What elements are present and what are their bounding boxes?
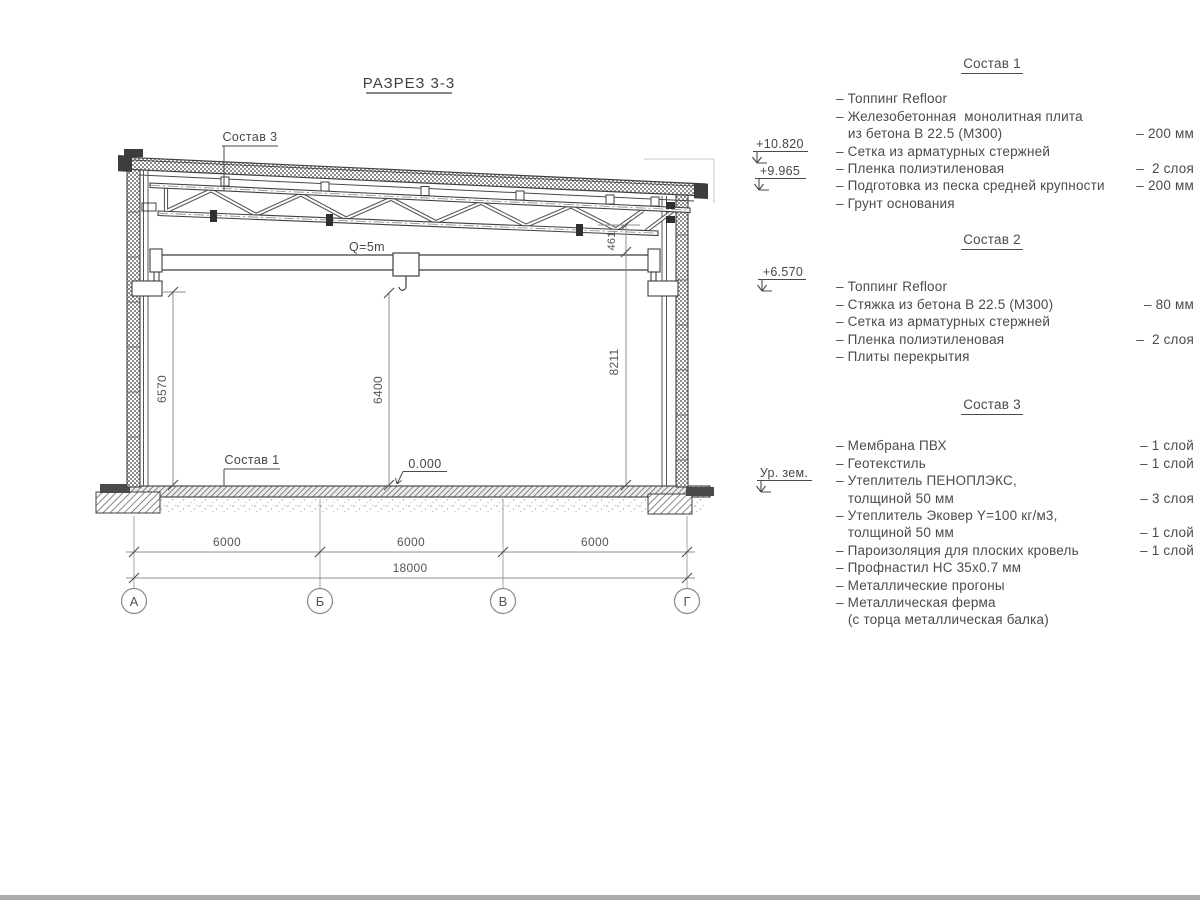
composition-row: – Утеплитель ПЕНОПЛЭКС, — [836, 472, 1194, 489]
composition-item-text: – Сетка из арматурных стержней — [836, 313, 1050, 330]
composition-row: толщиной 50 мм– 3 слоя — [836, 490, 1194, 507]
svg-text:+9.965: +9.965 — [760, 164, 800, 178]
composition-item-text: толщиной 50 мм — [836, 524, 954, 541]
elevation-beam: +6.570 — [758, 265, 807, 291]
composition-title: Состав 1 — [961, 55, 1023, 74]
composition-item-value: – 1 слой — [1140, 524, 1194, 541]
axis-label-v: В — [499, 594, 508, 609]
dim-truss-end: 461 — [606, 232, 618, 251]
dim-span-total: 18000 — [393, 561, 428, 575]
composition-row: – Плиты перекрытия — [836, 348, 1194, 365]
composition-item-text: – Подготовка из песка средней крупности — [836, 177, 1105, 194]
callout-sostav3: Состав 3 — [222, 130, 278, 191]
composition-item-text: – Утеплитель ПЕНОПЛЭКС, — [836, 472, 1017, 489]
dim-height-right: 8211 — [607, 348, 621, 375]
composition-item-value: – 2 слоя — [1136, 160, 1194, 177]
composition-list-2: Состав 2 – Топпинг Refloor – Стяжка из б… — [836, 231, 1194, 365]
composition-item-text: – Утеплитель Эковер Y=100 кг/м3, — [836, 507, 1058, 524]
composition-row: – Металлическая ферма — [836, 594, 1194, 611]
drawing-sheet: Q=5m Состав 3 Состав 1 0.000 6570 6400 8… — [0, 0, 1200, 900]
composition-row: – Мембрана ПВХ– 1 слой — [836, 437, 1194, 454]
composition-item-value: – 80 мм — [1144, 296, 1194, 313]
svg-text:Состав 1: Состав 1 — [224, 453, 279, 467]
callout-sostav1: Состав 1 — [224, 453, 280, 486]
composition-item-value: – 1 слой — [1140, 542, 1194, 559]
composition-row: – Профнастил НС 35х0.7 мм — [836, 559, 1194, 576]
composition-item-text: – Мембрана ПВХ — [836, 437, 947, 454]
composition-row: – Пленка полиэтиленовая– 2 слоя — [836, 160, 1194, 177]
composition-item-text: – Сетка из арматурных стержней — [836, 143, 1050, 160]
svg-text:Состав 3: Состав 3 — [222, 130, 277, 144]
composition-item-text: – Профнастил НС 35х0.7 мм — [836, 559, 1021, 576]
composition-item-text: – Грунт основания — [836, 195, 955, 212]
composition-item-text: – Пленка полиэтиленовая — [836, 331, 1004, 348]
elevation-roof: +9.965 — [755, 164, 807, 190]
svg-text:+10.820: +10.820 — [756, 137, 804, 151]
composition-row: – Пленка полиэтиленовая– 2 слоя — [836, 331, 1194, 348]
axis-bubbles: А Б В Г — [122, 589, 700, 614]
crane-capacity-label: Q=5m — [349, 240, 385, 254]
crane-bridge — [162, 253, 648, 290]
svg-text:Ур. зем.: Ур. зем. — [760, 466, 808, 480]
section-title: РАЗРЕЗ 3-3 — [363, 75, 456, 92]
composition-row: толщиной 50 мм– 1 слой — [836, 524, 1194, 541]
crane-runway-right — [648, 249, 678, 296]
composition-item-text: – Плиты перекрытия — [836, 348, 970, 365]
composition-item-text: – Геотекстиль — [836, 455, 926, 472]
composition-list-1: Состав 1 – Топпинг Refloor – Железобетон… — [836, 55, 1194, 212]
composition-row: – Геотекстиль– 1 слой — [836, 455, 1194, 472]
composition-item-value: – 2 слоя — [1136, 331, 1194, 348]
composition-row: – Металлические прогоны — [836, 577, 1194, 594]
dim-height-center: 6400 — [371, 376, 385, 404]
composition-row: – Сетка из арматурных стержней — [836, 143, 1194, 160]
composition-item-text: – Топпинг Refloor — [836, 90, 947, 107]
dim-span-3: 6000 — [581, 535, 609, 549]
composition-title: Состав 3 — [961, 396, 1023, 415]
composition-list-3: Состав 3 – Мембрана ПВХ– 1 слой – Геотек… — [836, 396, 1194, 629]
composition-item-text: из бетона В 22.5 (М300) — [836, 125, 1002, 142]
svg-text:0.000: 0.000 — [408, 457, 441, 471]
composition-title: Состав 2 — [961, 231, 1023, 250]
composition-item-text: – Металлическая ферма — [836, 594, 996, 611]
composition-row: – Сетка из арматурных стержней — [836, 313, 1194, 330]
dim-span-2: 6000 — [397, 535, 425, 549]
composition-item-text: – Топпинг Refloor — [836, 278, 947, 295]
svg-text:+6.570: +6.570 — [763, 265, 803, 279]
dim-span-1: 6000 — [213, 535, 241, 549]
composition-item-text: – Пароизоляция для плоских кровель — [836, 542, 1079, 559]
composition-item-value: – 200 мм — [1136, 125, 1194, 142]
composition-row: – Подготовка из песка средней крупности–… — [836, 177, 1194, 194]
composition-row: из бетона В 22.5 (М300)– 200 мм — [836, 125, 1194, 142]
floor-slab — [96, 484, 714, 514]
section-title-block: РАЗРЕЗ 3-3 — [363, 75, 456, 93]
composition-item-value: – 200 мм — [1136, 177, 1194, 194]
composition-row: – Грунт основания — [836, 195, 1194, 212]
composition-row: – Топпинг Refloor — [836, 90, 1194, 107]
composition-item-text: (с торца металлическая балка) — [836, 611, 1049, 628]
composition-item-text: – Железобетонная монолитная плита — [836, 108, 1083, 125]
axis-label-a: А — [130, 594, 139, 609]
composition-row: – Утеплитель Эковер Y=100 кг/м3, — [836, 507, 1194, 524]
elevation-ground: Ур. зем. — [757, 466, 813, 492]
crane-trolley — [393, 253, 419, 276]
composition-row: (с торца металлическая балка) — [836, 611, 1194, 628]
composition-item-value: – 1 слой — [1140, 437, 1194, 454]
composition-row: – Стяжка из бетона В 22.5 (М300)– 80 мм — [836, 296, 1194, 313]
composition-item-text: – Пленка полиэтиленовая — [836, 160, 1004, 177]
composition-row: – Железобетонная монолитная плита — [836, 108, 1194, 125]
axis-label-g: Г — [683, 594, 690, 609]
horizontal-scrollbar[interactable] — [0, 895, 1200, 900]
composition-row: – Топпинг Refloor — [836, 278, 1194, 295]
composition-item-text: – Стяжка из бетона В 22.5 (М300) — [836, 296, 1053, 313]
level-zero-mark: 0.000 — [396, 457, 448, 484]
right-wall — [662, 186, 692, 487]
left-wall — [124, 149, 148, 487]
composition-row: – Пароизоляция для плоских кровель– 1 сл… — [836, 542, 1194, 559]
crane-hook — [399, 276, 406, 290]
composition-item-value: – 1 слой — [1140, 455, 1194, 472]
dim-height-left: 6570 — [155, 375, 169, 403]
composition-item-value: – 3 слоя — [1140, 490, 1194, 507]
elevation-parapet: +10.820 — [753, 137, 809, 163]
composition-item-text: – Металлические прогоны — [836, 577, 1005, 594]
axis-label-b: Б — [316, 594, 325, 609]
composition-item-text: толщиной 50 мм — [836, 490, 954, 507]
